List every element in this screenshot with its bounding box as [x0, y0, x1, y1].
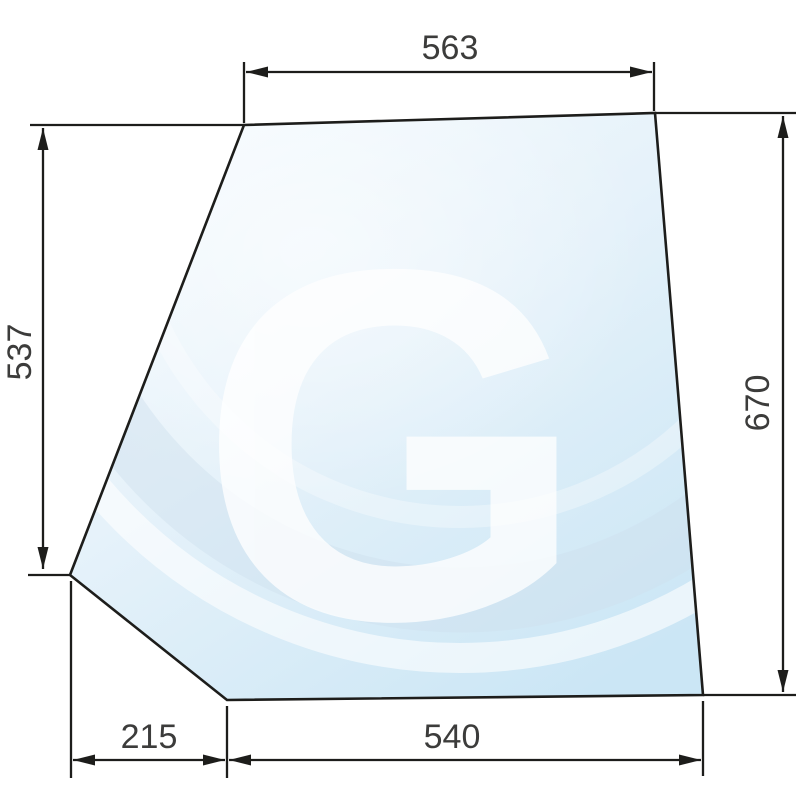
- dimension-label-bottom-width: 540: [424, 718, 481, 756]
- arrowhead-top-right: [630, 67, 652, 78]
- arrowhead-bottom-left-in: [203, 755, 225, 766]
- dimension-top-width: 563: [244, 29, 654, 123]
- drawing-canvas: G 563 537: [0, 0, 800, 800]
- dimension-label-right-height: 670: [739, 375, 777, 432]
- watermark-g-logo: G: [199, 165, 588, 724]
- dimension-bottom-width: 540: [229, 701, 703, 776]
- glass-pane: G: [0, 0, 800, 724]
- arrowhead-top-left: [246, 67, 268, 78]
- arrowhead-right-up: [778, 116, 789, 138]
- dimension-label-top-width: 563: [422, 29, 479, 67]
- arrowhead-bottom-mid: [229, 755, 251, 766]
- glass-part-technical-drawing: G 563 537: [0, 0, 800, 800]
- arrowhead-right-down: [778, 670, 789, 692]
- dimension-label-left-height: 537: [1, 324, 39, 381]
- arrowhead-bottom-left-out: [73, 755, 95, 766]
- dimension-label-bottom-left-width: 215: [121, 718, 178, 756]
- arrowhead-left-down: [38, 547, 49, 569]
- arrowhead-left-up: [38, 128, 49, 150]
- arrowhead-bottom-right: [679, 755, 701, 766]
